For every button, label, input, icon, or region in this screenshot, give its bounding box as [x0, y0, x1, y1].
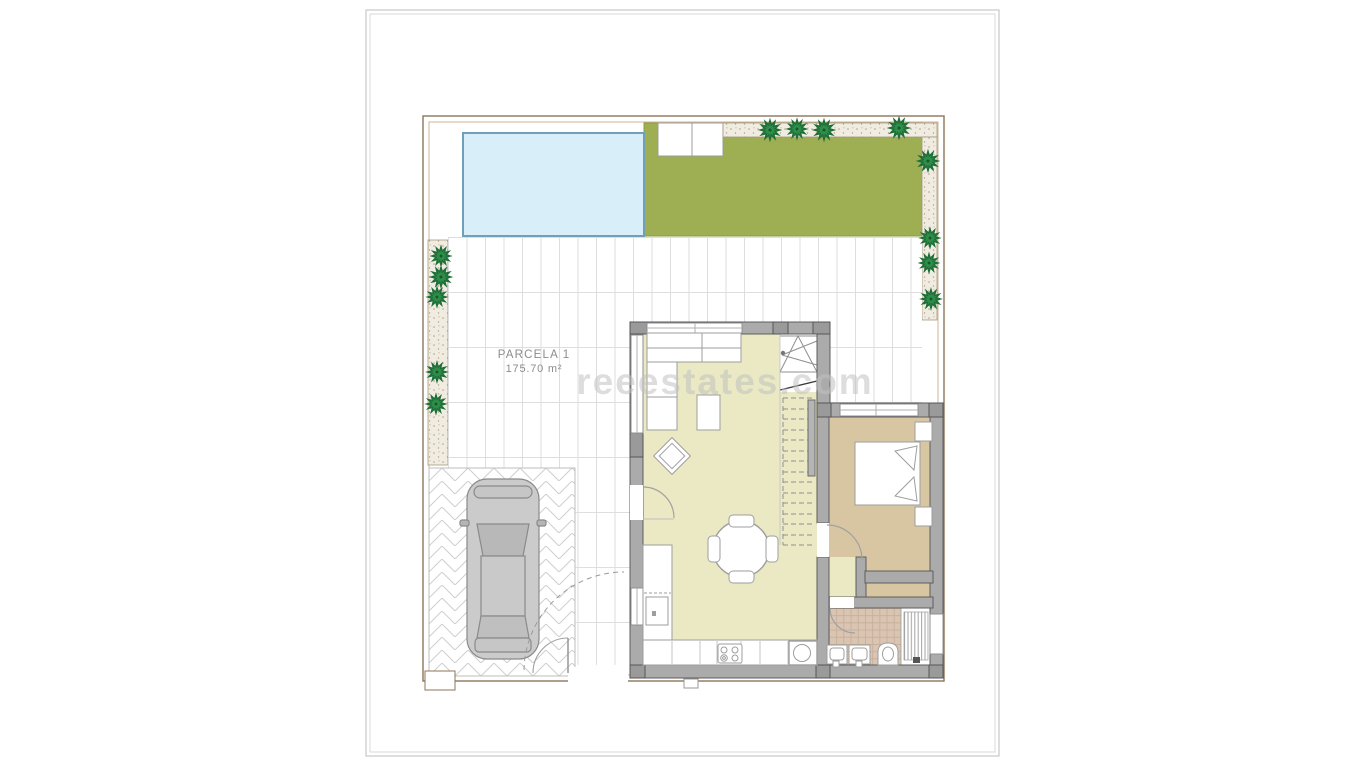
- bedroom-floor-nook: [865, 583, 930, 597]
- sofa-back: [647, 333, 741, 348]
- bathroom-door-opening: [830, 597, 854, 608]
- parcel-label: PARCELA 1: [498, 349, 571, 361]
- dining-table: [713, 521, 769, 577]
- sofa-seat: [647, 348, 741, 362]
- plot-corner-marker: [425, 671, 455, 690]
- dining-chair: [729, 571, 754, 583]
- wall-segment: [817, 417, 829, 523]
- fridge: [646, 597, 668, 625]
- dining-chair: [708, 536, 720, 562]
- nightstand: [915, 507, 932, 526]
- shower-window: [930, 614, 943, 654]
- floor-plan-drawing: PARCELA 1 175.70 m² reeestates.com: [0, 0, 1366, 768]
- washing-machine-drum: [794, 645, 811, 662]
- shower-drain: [913, 657, 920, 663]
- swimming-pool: [463, 133, 644, 236]
- entry-door-opening: [630, 485, 643, 520]
- bathroom-fixtures: [827, 643, 898, 667]
- wall-segment: [630, 665, 943, 678]
- bedroom-door-opening: [817, 523, 829, 557]
- nightstand: [915, 422, 932, 441]
- watermark-text: reeestates.com: [576, 361, 873, 402]
- car-top-view-icon: [460, 479, 546, 659]
- tile-area: [575, 468, 630, 665]
- tile-area: [448, 237, 922, 322]
- carport: [429, 468, 575, 676]
- basin-tap: [856, 661, 862, 667]
- gate-opening: [568, 667, 628, 683]
- dining-chair: [766, 536, 778, 562]
- shower-stripes: [904, 612, 928, 660]
- hall-pocket-floor: [829, 557, 856, 597]
- wall-segment: [865, 571, 933, 583]
- lawn-planter-box: [658, 123, 692, 156]
- utility-connection-box: [684, 679, 698, 688]
- stair-handrail: [808, 400, 815, 476]
- floor-plan-page: PARCELA 1 175.70 m² reeestates.com: [0, 0, 1366, 768]
- dining-chair: [729, 515, 754, 527]
- basin-tap: [833, 661, 839, 667]
- parcel-area-label: 175.70 m²: [506, 363, 563, 375]
- kitchen-counter-left: [643, 545, 672, 640]
- lawn-planter-box: [692, 123, 723, 156]
